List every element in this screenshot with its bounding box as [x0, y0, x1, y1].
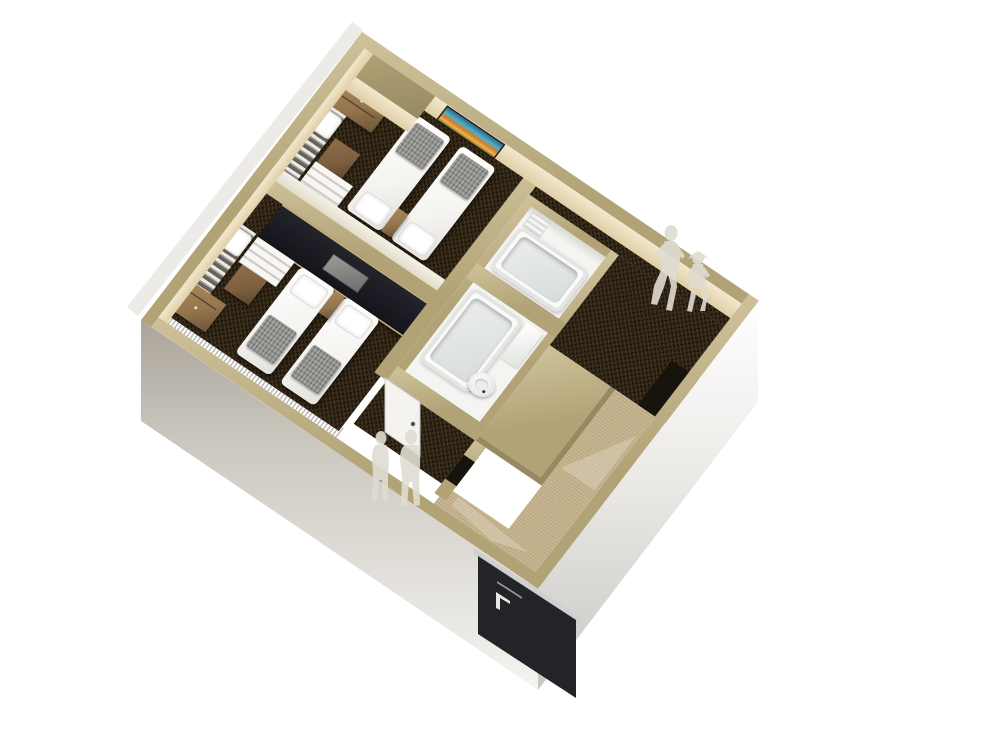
- walking-child-figure: [680, 248, 716, 316]
- render-stage: [0, 0, 1000, 750]
- entrance-door-handle: [496, 592, 510, 610]
- dresser-lower-knob: [194, 306, 198, 310]
- entrance-door-label: [497, 581, 522, 599]
- toilet-flush-dot: [482, 390, 486, 394]
- standing-figure-1: [366, 430, 396, 508]
- standing-figure-2: [394, 428, 428, 514]
